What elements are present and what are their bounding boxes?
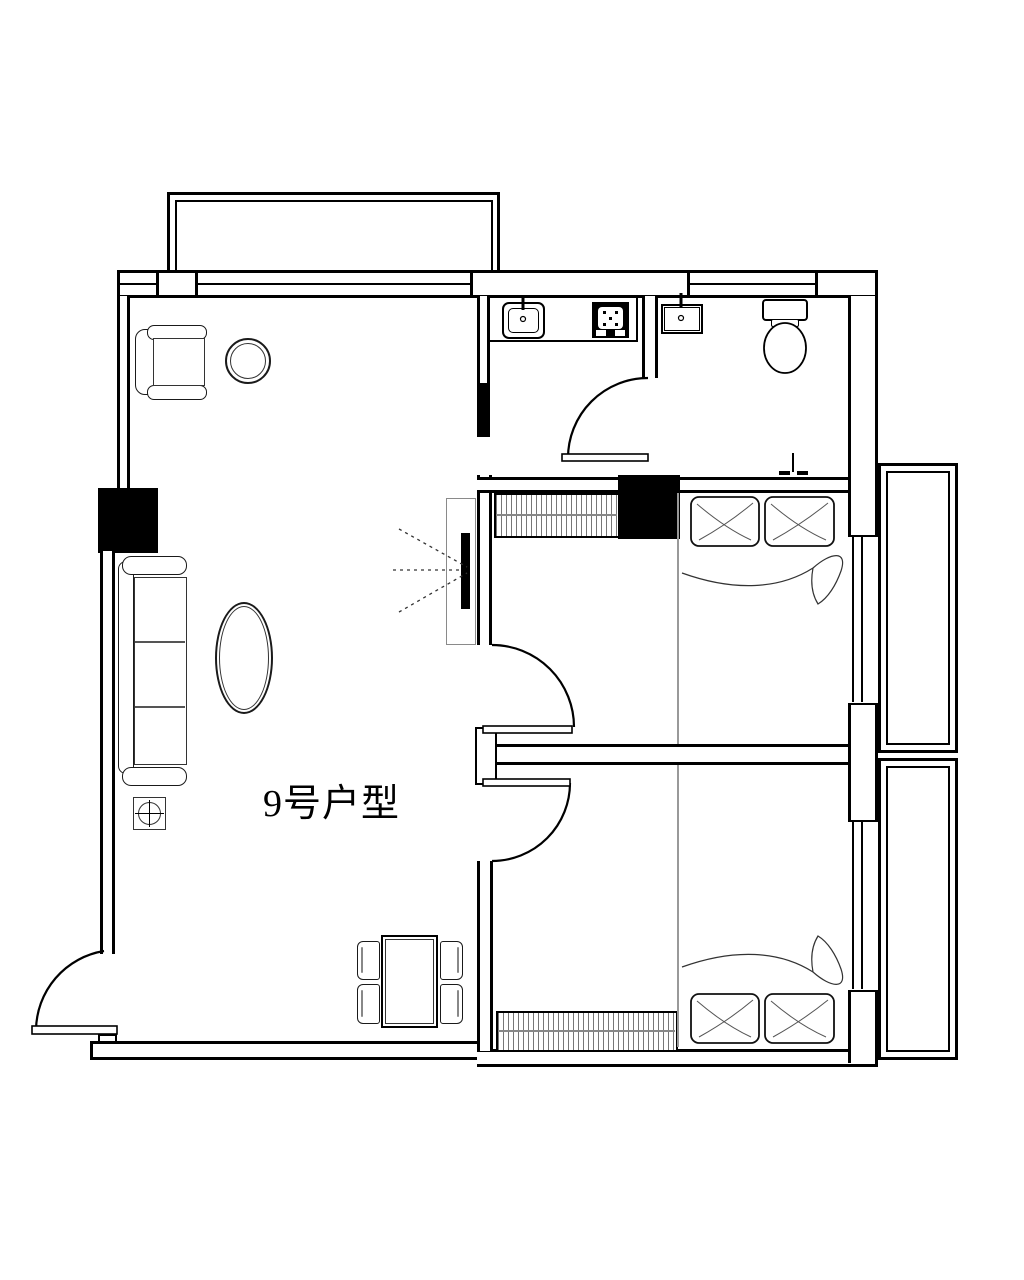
hall-south-wall: [477, 477, 620, 493]
column-center: [618, 475, 680, 539]
pillow: [765, 994, 834, 1043]
wardrobe-center-line: [498, 1030, 675, 1032]
bed1-blanket: [682, 556, 843, 604]
band-divider-1: [470, 270, 473, 298]
window-glass-line: [861, 822, 863, 989]
window-glazing-line-main: [198, 283, 472, 285]
stove-burner-dot: [603, 323, 606, 326]
pillow: [691, 497, 759, 546]
bathroom-door-arc: [568, 378, 648, 458]
bed2-pillows: [691, 994, 834, 1043]
bathroom-south-wall: [680, 477, 848, 493]
sofa-arm-bottom: [122, 767, 187, 786]
right-window-2: [848, 820, 878, 992]
stove-burner-dot: [609, 317, 612, 320]
column-left: [98, 488, 158, 553]
shower-base-left: [779, 471, 790, 475]
washbasin-inner: [664, 307, 700, 331]
sofa-cushion-divider: [135, 641, 185, 643]
tv: [461, 533, 470, 609]
entrance-door-arc: [36, 951, 104, 1030]
chair-back-line: [457, 947, 459, 973]
sofa-back: [118, 561, 134, 774]
bedroom1-door-arc: [492, 645, 574, 727]
bay-window-1-inner: [886, 471, 950, 745]
dining-chair: [357, 941, 380, 980]
wardrobe-center-line: [496, 514, 617, 516]
bedroom2-door-arc: [492, 783, 570, 861]
door-post: [475, 727, 497, 785]
window-glass-line: [861, 537, 863, 702]
chair-back-line: [457, 990, 459, 1017]
kitchen-east-wall: [642, 296, 658, 378]
bed1-pillows: [691, 497, 834, 546]
sofa-arm-top: [122, 556, 187, 575]
bed2-blanket: [682, 936, 843, 984]
window-glass-line: [852, 537, 854, 702]
unit-type-label: 9号户型: [263, 785, 400, 825]
bedroom1-west-wall: [477, 475, 492, 645]
crosshair-vline: [149, 800, 150, 827]
dining-table-inner: [385, 939, 434, 1024]
bed1-pillow-creases: [697, 503, 828, 540]
chair-back-line: [361, 990, 363, 1017]
bed1-left-edge: [677, 493, 679, 744]
left-wall-lower: [100, 551, 115, 954]
floor-plan: 9号户型: [0, 0, 1024, 1280]
bed2-left-edge: [677, 765, 679, 1047]
entrance-door-leaf: [32, 1026, 117, 1034]
stove-burner-dot: [615, 323, 618, 326]
dining-chair: [357, 984, 380, 1024]
dining-chair: [440, 941, 463, 980]
toilet-tank: [762, 299, 808, 321]
bedroom2-west-wall: [477, 861, 493, 1051]
left-wall-upper: [117, 296, 130, 490]
stove-burner-dot: [615, 311, 618, 314]
right-window-1: [848, 535, 878, 705]
kitchen-sink-basin: [508, 308, 539, 333]
stove-burner-dot: [603, 311, 606, 314]
toilet-seat-joint: [771, 319, 799, 327]
shower-base-right: [797, 471, 808, 475]
kitchen-sliding-panel: [478, 383, 488, 437]
toilet-bowl: [764, 323, 806, 373]
bottom-wall-left: [90, 1041, 493, 1060]
round-side-table-inner: [230, 343, 266, 379]
window-glazing-line-left: [120, 283, 158, 285]
window-glazing-line-bathroom: [690, 283, 817, 285]
chair-back-line: [361, 947, 363, 973]
bedroom-divider-wall: [497, 744, 848, 765]
wall-pier: [156, 270, 198, 298]
oval-coffee-table-inner: [219, 606, 269, 710]
balcony-inner-line: [175, 200, 493, 272]
armchair-seat: [153, 338, 205, 386]
armchair-arm-bottom: [147, 385, 207, 400]
stove-knob: [606, 330, 615, 336]
sofa-cushion-divider: [135, 706, 185, 708]
wardrobe-bedroom2: [496, 1011, 678, 1052]
pillow: [765, 497, 834, 546]
wardrobe-bedroom1: [494, 493, 620, 538]
band-divider-3: [815, 270, 818, 298]
bathroom-door-leaf: [562, 454, 648, 461]
window-glass-line: [852, 822, 854, 989]
dining-chair: [440, 984, 463, 1024]
bay-window-2-inner: [886, 766, 950, 1052]
pillow: [691, 994, 759, 1043]
bed2-pillow-creases: [697, 1000, 828, 1037]
sofa-seat: [134, 577, 187, 765]
